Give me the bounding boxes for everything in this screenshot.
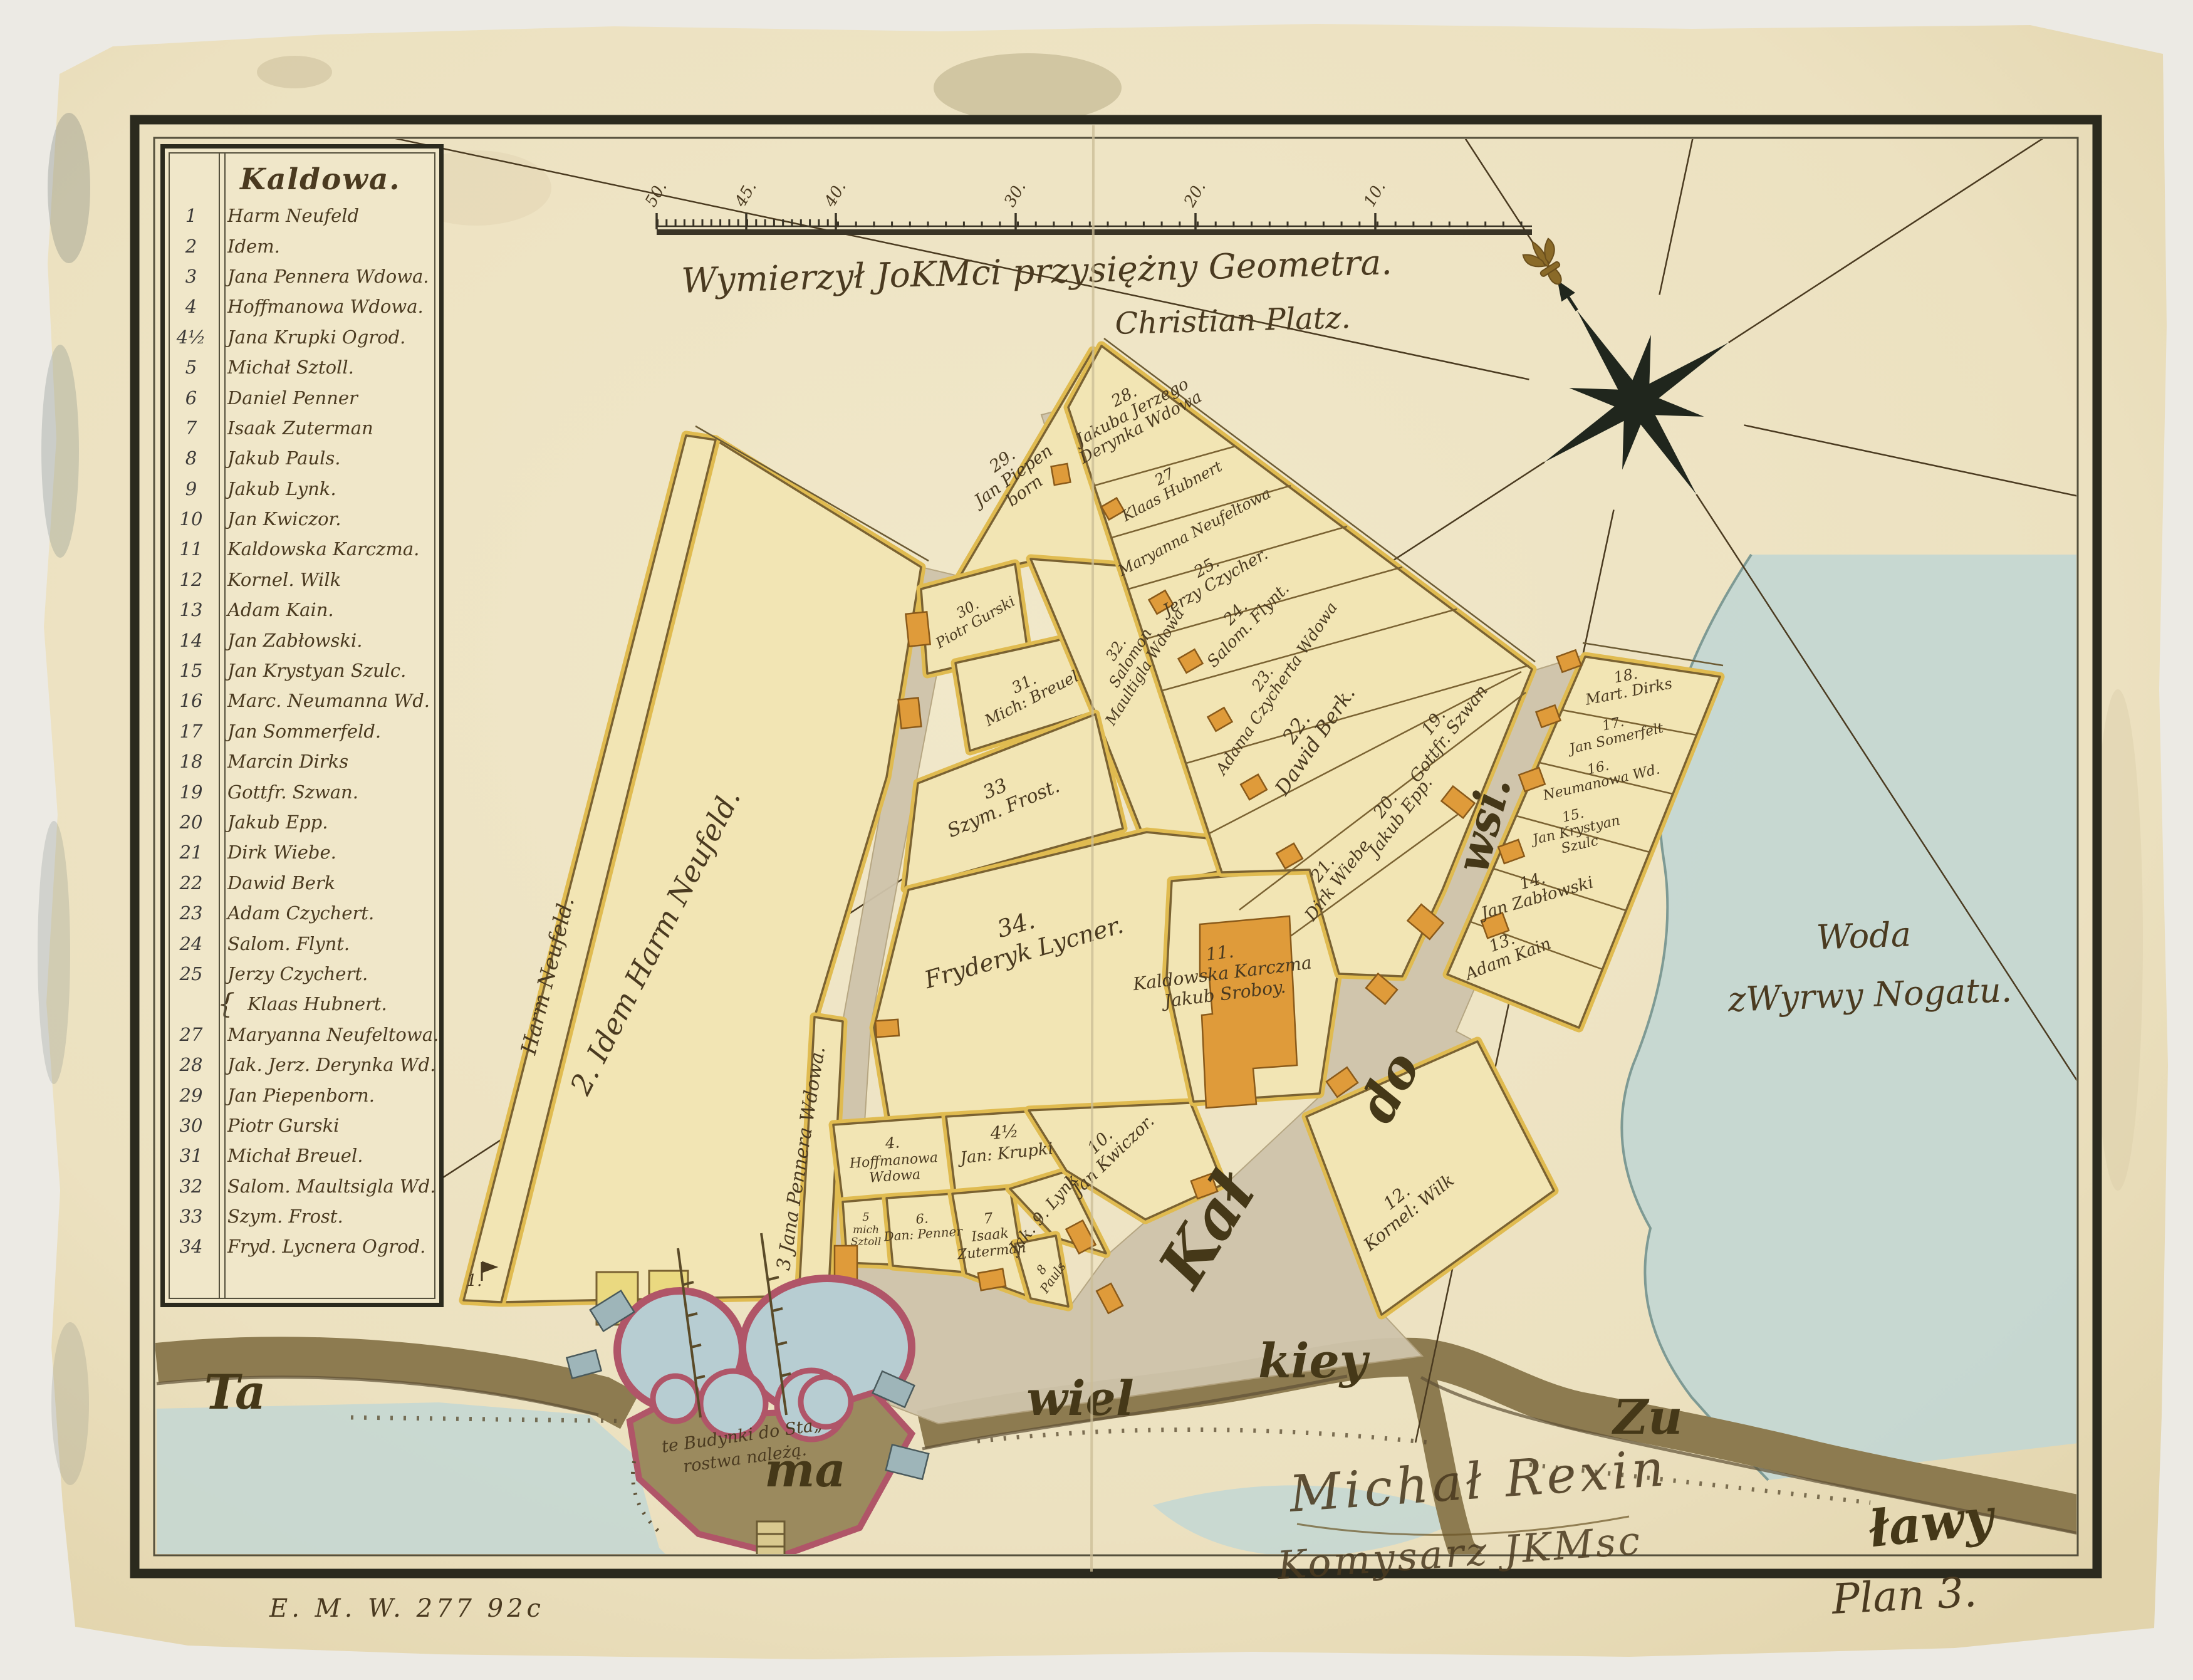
svg-text:7: 7	[983, 1210, 994, 1227]
svg-text:mich: mich	[853, 1224, 879, 1236]
pencil-inventory-number: E. M. W. 277 92c	[269, 1594, 544, 1623]
water-bottom-left	[157, 1402, 665, 1554]
svg-text:6.: 6.	[915, 1211, 929, 1226]
legend-number-divider	[219, 152, 226, 1299]
dike-word-zu: Zu	[1612, 1389, 1683, 1445]
svg-text:11.: 11.	[1205, 941, 1235, 964]
svg-text:4.: 4.	[884, 1134, 900, 1152]
dike-word-wiel: wiel	[1026, 1370, 1134, 1426]
dike-word-kiey: kiey	[1258, 1333, 1370, 1389]
scanned-map-page: te Budynki do Sta„ rostwa należą. 50. 45…	[0, 0, 2193, 1680]
svg-text:5: 5	[862, 1211, 869, 1224]
pencil-plan-number: Plan 3.	[1830, 1568, 1978, 1624]
svg-text:Sztoll: Sztoll	[851, 1236, 882, 1248]
svg-text:1.: 1.	[467, 1271, 482, 1290]
svg-text:Woda: Woda	[1816, 914, 1912, 957]
dike-word-ma: ma	[764, 1442, 846, 1498]
title-line2: Christian Platz.	[1115, 300, 1351, 342]
legend-box: Kaldowa. 1Harm Neufeld2Idem.3Jana Penner…	[160, 144, 444, 1307]
dike-word-ta: Ta	[204, 1364, 266, 1420]
svg-text:4½: 4½	[989, 1120, 1019, 1144]
legend-inner-border	[169, 152, 435, 1299]
